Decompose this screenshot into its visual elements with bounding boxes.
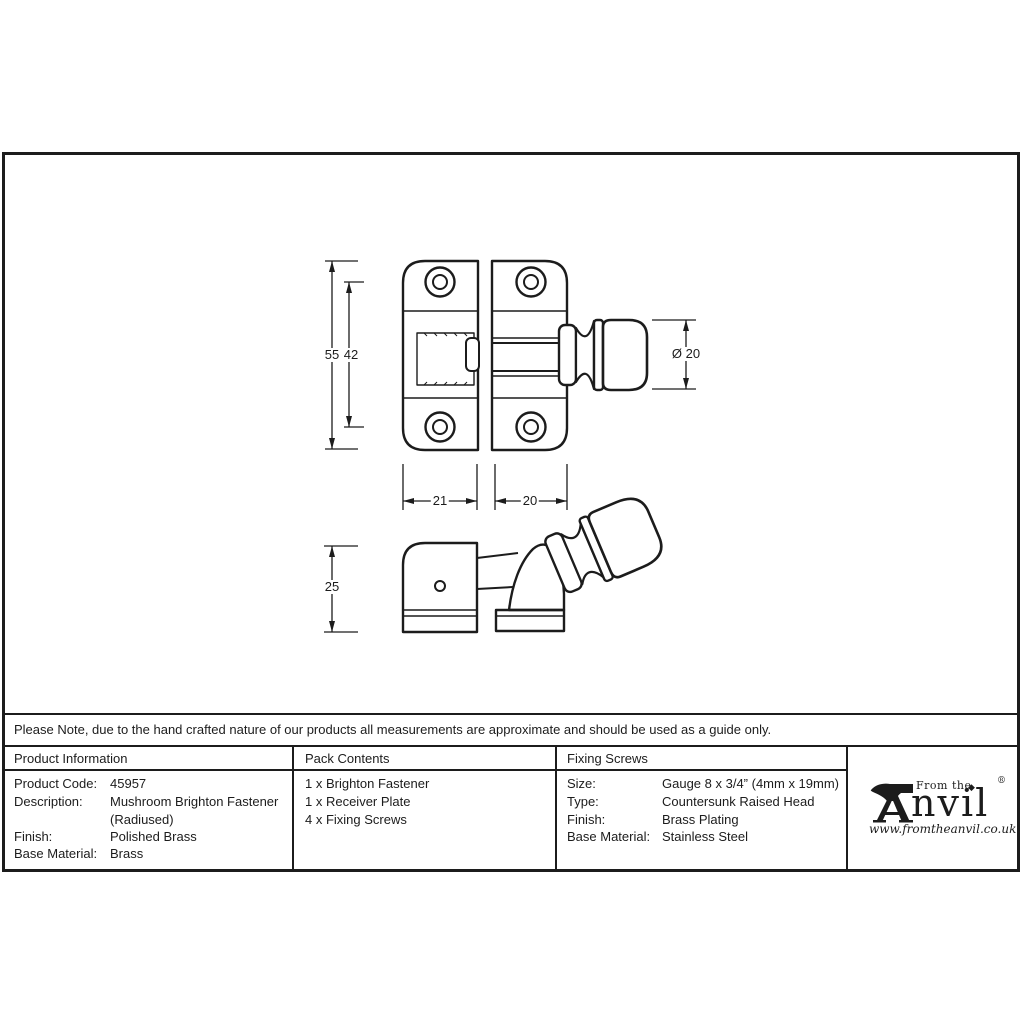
dim-label-42: 42 xyxy=(342,348,360,362)
note-row-top-rule xyxy=(2,713,1020,715)
description-value-2: (Radiused) xyxy=(110,811,174,829)
dim-label-55: 55 xyxy=(323,348,341,362)
from-the-anvil-logo: From the nvil ◆ ® www.fromtheanvil.co.uk xyxy=(868,776,1018,840)
description-label: Description: xyxy=(14,793,83,811)
header-product-information: Product Information xyxy=(14,750,127,768)
logo-brand-text: nvil xyxy=(911,784,989,822)
technical-drawing xyxy=(0,0,1024,1024)
dim-label-25: 25 xyxy=(323,580,341,594)
screw-finish-label: Finish: xyxy=(567,811,605,829)
spec-sheet-page: 55 42 Ø 20 21 20 25 Please Note, due to … xyxy=(0,0,1024,1024)
screw-type-value: Countersunk Raised Head xyxy=(662,793,814,811)
registered-mark: ® xyxy=(997,776,1006,786)
screw-finish-value: Brass Plating xyxy=(662,811,739,829)
product-code-label: Product Code: xyxy=(14,775,97,793)
side-view-fastener xyxy=(403,492,667,632)
logo-website-text: www.fromtheanvil.co.uk xyxy=(869,822,1016,836)
pack-item-2: 1 x Receiver Plate xyxy=(305,793,411,811)
top-view-knob xyxy=(559,320,647,390)
screw-base-material-label: Base Material: xyxy=(567,828,650,846)
base-material-value: Brass xyxy=(110,845,143,863)
dimension-lines xyxy=(324,261,696,632)
measurement-note: Please Note, due to the hand crafted nat… xyxy=(14,721,771,739)
table-divider-1 xyxy=(292,745,294,872)
product-code-value: 45957 xyxy=(110,775,146,793)
pack-item-3: 4 x Fixing Screws xyxy=(305,811,407,829)
base-material-label: Base Material: xyxy=(14,845,97,863)
dimension-arrowheads xyxy=(329,261,689,632)
finish-label: Finish: xyxy=(14,828,52,846)
finish-value: Polished Brass xyxy=(110,828,197,846)
dim-label-20: 20 xyxy=(521,494,539,508)
dim-label-diameter-20: Ø 20 xyxy=(670,347,702,361)
screw-size-value: Gauge 8 x 3/4” (4mm x 19mm) xyxy=(662,775,839,793)
top-view-fastener xyxy=(403,261,647,450)
screw-base-material-value: Stainless Steel xyxy=(662,828,748,846)
diamond-icon: ◆ xyxy=(968,782,975,793)
screw-type-label: Type: xyxy=(567,793,599,811)
anvil-icon xyxy=(868,780,914,824)
table-header-rule xyxy=(2,769,847,771)
header-pack-contents: Pack Contents xyxy=(305,750,390,768)
description-value: Mushroom Brighton Fastener xyxy=(110,793,278,811)
pack-item-1: 1 x Brighton Fastener xyxy=(305,775,429,793)
header-fixing-screws: Fixing Screws xyxy=(567,750,648,768)
dim-label-21: 21 xyxy=(431,494,449,508)
screw-size-label: Size: xyxy=(567,775,596,793)
table-divider-2 xyxy=(555,745,557,872)
table-top-rule xyxy=(2,745,1020,747)
table-divider-3 xyxy=(846,745,848,872)
